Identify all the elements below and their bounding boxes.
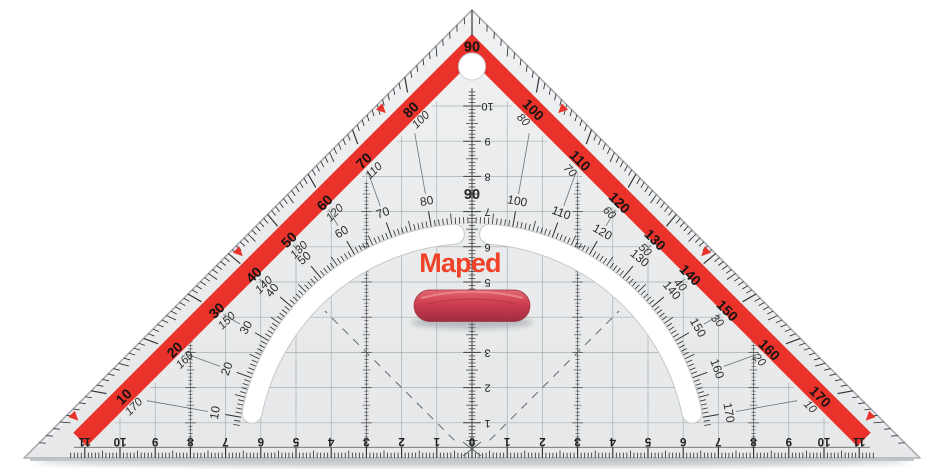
svg-text:11: 11 <box>78 435 91 447</box>
svg-text:2: 2 <box>398 435 404 447</box>
svg-text:9: 9 <box>484 135 490 147</box>
svg-text:7: 7 <box>484 206 490 218</box>
svg-text:0: 0 <box>469 435 475 447</box>
svg-text:4: 4 <box>609 435 616 447</box>
svg-text:1: 1 <box>433 435 440 447</box>
brand-logo: Maped <box>419 248 501 278</box>
svg-text:1: 1 <box>484 417 490 429</box>
svg-text:7: 7 <box>222 435 228 447</box>
svg-text:1: 1 <box>503 435 510 447</box>
svg-text:8: 8 <box>187 435 194 447</box>
svg-text:2: 2 <box>484 382 490 394</box>
svg-text:10: 10 <box>114 435 127 447</box>
svg-text:6: 6 <box>680 435 686 447</box>
svg-text:80: 80 <box>419 193 435 209</box>
brand-logo-text: Maped <box>419 248 501 278</box>
grip-handle <box>411 290 533 329</box>
svg-text:11: 11 <box>853 435 866 447</box>
svg-text:9: 9 <box>152 435 158 447</box>
svg-text:5: 5 <box>644 435 651 447</box>
svg-text:3: 3 <box>484 346 490 358</box>
svg-text:90: 90 <box>464 187 480 203</box>
svg-text:3: 3 <box>363 435 369 447</box>
svg-text:4: 4 <box>327 435 334 447</box>
svg-text:3: 3 <box>574 435 580 447</box>
svg-text:5: 5 <box>292 435 299 447</box>
set-square: 12345678910 1020304050607080901001101201… <box>0 0 945 469</box>
svg-text:7: 7 <box>715 435 721 447</box>
apex-hole <box>459 53 486 80</box>
svg-text:9: 9 <box>786 435 792 447</box>
svg-text:10: 10 <box>818 435 831 447</box>
svg-text:8: 8 <box>484 170 490 182</box>
svg-text:10: 10 <box>207 405 223 421</box>
svg-text:2: 2 <box>539 435 545 447</box>
svg-text:10: 10 <box>481 100 493 112</box>
svg-text:6: 6 <box>258 435 264 447</box>
product-photo: 12345678910 1020304050607080901001101201… <box>0 0 945 469</box>
svg-text:8: 8 <box>750 435 757 447</box>
